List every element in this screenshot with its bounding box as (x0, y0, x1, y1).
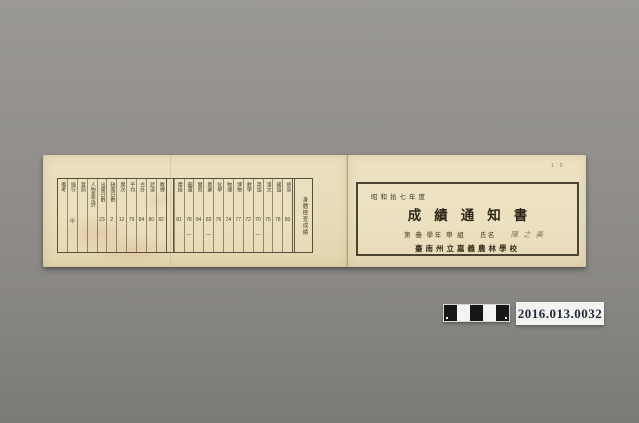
grades-table: 備考操行甲賞罰人物查定評出席日數23缺席日數2席次12平均79合計84武道80教… (57, 178, 313, 253)
subject-column: 人物查定評 (87, 179, 97, 252)
score-value: 83 (204, 217, 213, 223)
subject-column: 國語78 (272, 179, 282, 252)
grade-prefix: 第 (404, 232, 412, 239)
subject-column: 武道80 (146, 179, 156, 252)
subject-header: 缺席日數 (109, 182, 114, 202)
score-value: 80 (147, 217, 156, 223)
scale-square (457, 305, 470, 321)
subject-column: 操行甲 (67, 179, 77, 252)
subject-header: 漢文 (265, 182, 270, 192)
subject-header: 化學 (216, 182, 221, 192)
subject-column: 出席日數23 (97, 179, 107, 252)
subject-header: 席次 (119, 182, 124, 192)
subject-column: 修身80 (282, 179, 292, 252)
grade-number: 叁 (415, 232, 423, 239)
class-letter: 甲 (446, 232, 454, 239)
subject-header: 農業 (206, 182, 211, 192)
title-box: 昭和拾七年度 成績通知書 第 叁 學年 甲 組 氏名 陳之美 臺南州立嘉義農林學… (356, 182, 579, 256)
exam-label: 身體檢查成績 (301, 196, 307, 235)
subject-header: 國語 (275, 182, 280, 192)
subject-header: 平均 (129, 182, 134, 192)
subject-header: 實習 (196, 182, 201, 192)
score-value: 77 (234, 217, 243, 223)
subject-header: 合計 (139, 182, 144, 192)
subject-header: 人物查定評 (89, 182, 94, 207)
school-year-line: 昭和拾七年度 (371, 191, 428, 201)
subject-column: 數學72 (243, 179, 253, 252)
subject-column: 英語70一 (253, 179, 263, 252)
class-suffix: 組 (457, 232, 465, 239)
scale-tick (505, 317, 507, 319)
subject-header: 博物 (236, 182, 241, 192)
subject-column: 圖畫78一 (184, 179, 194, 252)
photo-stage: 備考操行甲賞罰人物查定評出席日數23缺席日數2席次12平均79合計84武道80教… (0, 0, 639, 423)
grade-name-line: 第 叁 學年 甲 組 氏名 陳之美 (404, 229, 579, 240)
score-value: 84 (137, 217, 146, 223)
score-value: 78 (273, 217, 282, 223)
subject-header: 修身 (285, 182, 290, 192)
subject-column: 平均79 (126, 179, 136, 252)
dash-mark: 一 (254, 232, 263, 239)
subject-column: 博物77 (233, 179, 243, 252)
catalog-label: 2016.013.0032 (516, 302, 604, 325)
dash-mark: 一 (185, 232, 194, 239)
catalog-number: 2016.013.0032 (518, 306, 603, 322)
grades-page: 備考操行甲賞罰人物查定評出席日數23缺席日數2席次12平均79合計84武道80教… (43, 155, 348, 267)
subject-header: 體操 (176, 182, 181, 192)
subject-column: 農業83一 (203, 179, 213, 252)
score-value: 75 (264, 217, 273, 223)
subject-header: 圖畫 (186, 182, 191, 192)
document-title: 成績通知書 (358, 204, 577, 224)
photo-scale-bar (443, 304, 510, 322)
score-value: 82 (157, 217, 166, 223)
scale-square (444, 305, 457, 321)
inventory-mark: 1 8 (551, 163, 565, 169)
scale-square (470, 305, 483, 321)
subject-header: 數學 (246, 182, 251, 192)
score-value: 70 (254, 217, 263, 223)
score-value: 23 (98, 217, 107, 223)
paper-crease (170, 155, 172, 267)
dash-mark: 一 (204, 232, 213, 239)
scale-square (483, 305, 496, 321)
subject-column: 缺席日數2 (106, 179, 116, 252)
score-value: 12 (117, 217, 126, 223)
score-value: 80 (283, 217, 292, 223)
report-card-document: 備考操行甲賞罰人物查定評出席日數23缺席日數2席次12平均79合計84武道80教… (43, 155, 586, 267)
score-value: 79 (127, 217, 136, 223)
score-value: 76 (214, 217, 223, 223)
score-value: 2 (107, 217, 116, 223)
subject-column: 漢文75 (263, 179, 273, 252)
grade-suffix: 學年 (427, 232, 443, 239)
subject-header: 武道 (149, 182, 154, 192)
school-name: 臺南州立嘉義農林學校 (358, 243, 577, 254)
score-value: 72 (244, 217, 253, 223)
subject-header: 教練 (159, 182, 164, 192)
score-value: 74 (224, 217, 233, 223)
subject-column: 實習84 (193, 179, 203, 252)
subject-column: 賞罰 (77, 179, 87, 252)
subject-column: 備考 (58, 179, 67, 252)
subject-header: 操行 (70, 182, 75, 192)
scale-tick (446, 317, 448, 319)
score-value: 84 (194, 217, 203, 223)
subject-column: 化學76 (213, 179, 223, 252)
exam-label-column: 身體檢查成績 (292, 179, 312, 252)
subject-header: 出席日數 (99, 182, 104, 202)
name-label: 氏名 (480, 232, 496, 239)
subject-column: 席次12 (116, 179, 126, 252)
subject-column: 物理74 (223, 179, 233, 252)
subject-column: 體操81 (174, 179, 184, 252)
subject-header: 備考 (60, 182, 65, 192)
student-name: 陳之美 (511, 230, 549, 239)
subject-column: 合計84 (136, 179, 146, 252)
subject-header: 物理 (226, 182, 231, 192)
subject-header: 賞罰 (80, 182, 85, 192)
subject-column: 教練82 (156, 179, 166, 252)
scale-square (496, 305, 509, 321)
subject-header: 英語 (255, 182, 260, 192)
score-value: 甲 (68, 217, 77, 225)
score-value: 81 (175, 217, 184, 223)
score-value: 78 (185, 217, 194, 223)
